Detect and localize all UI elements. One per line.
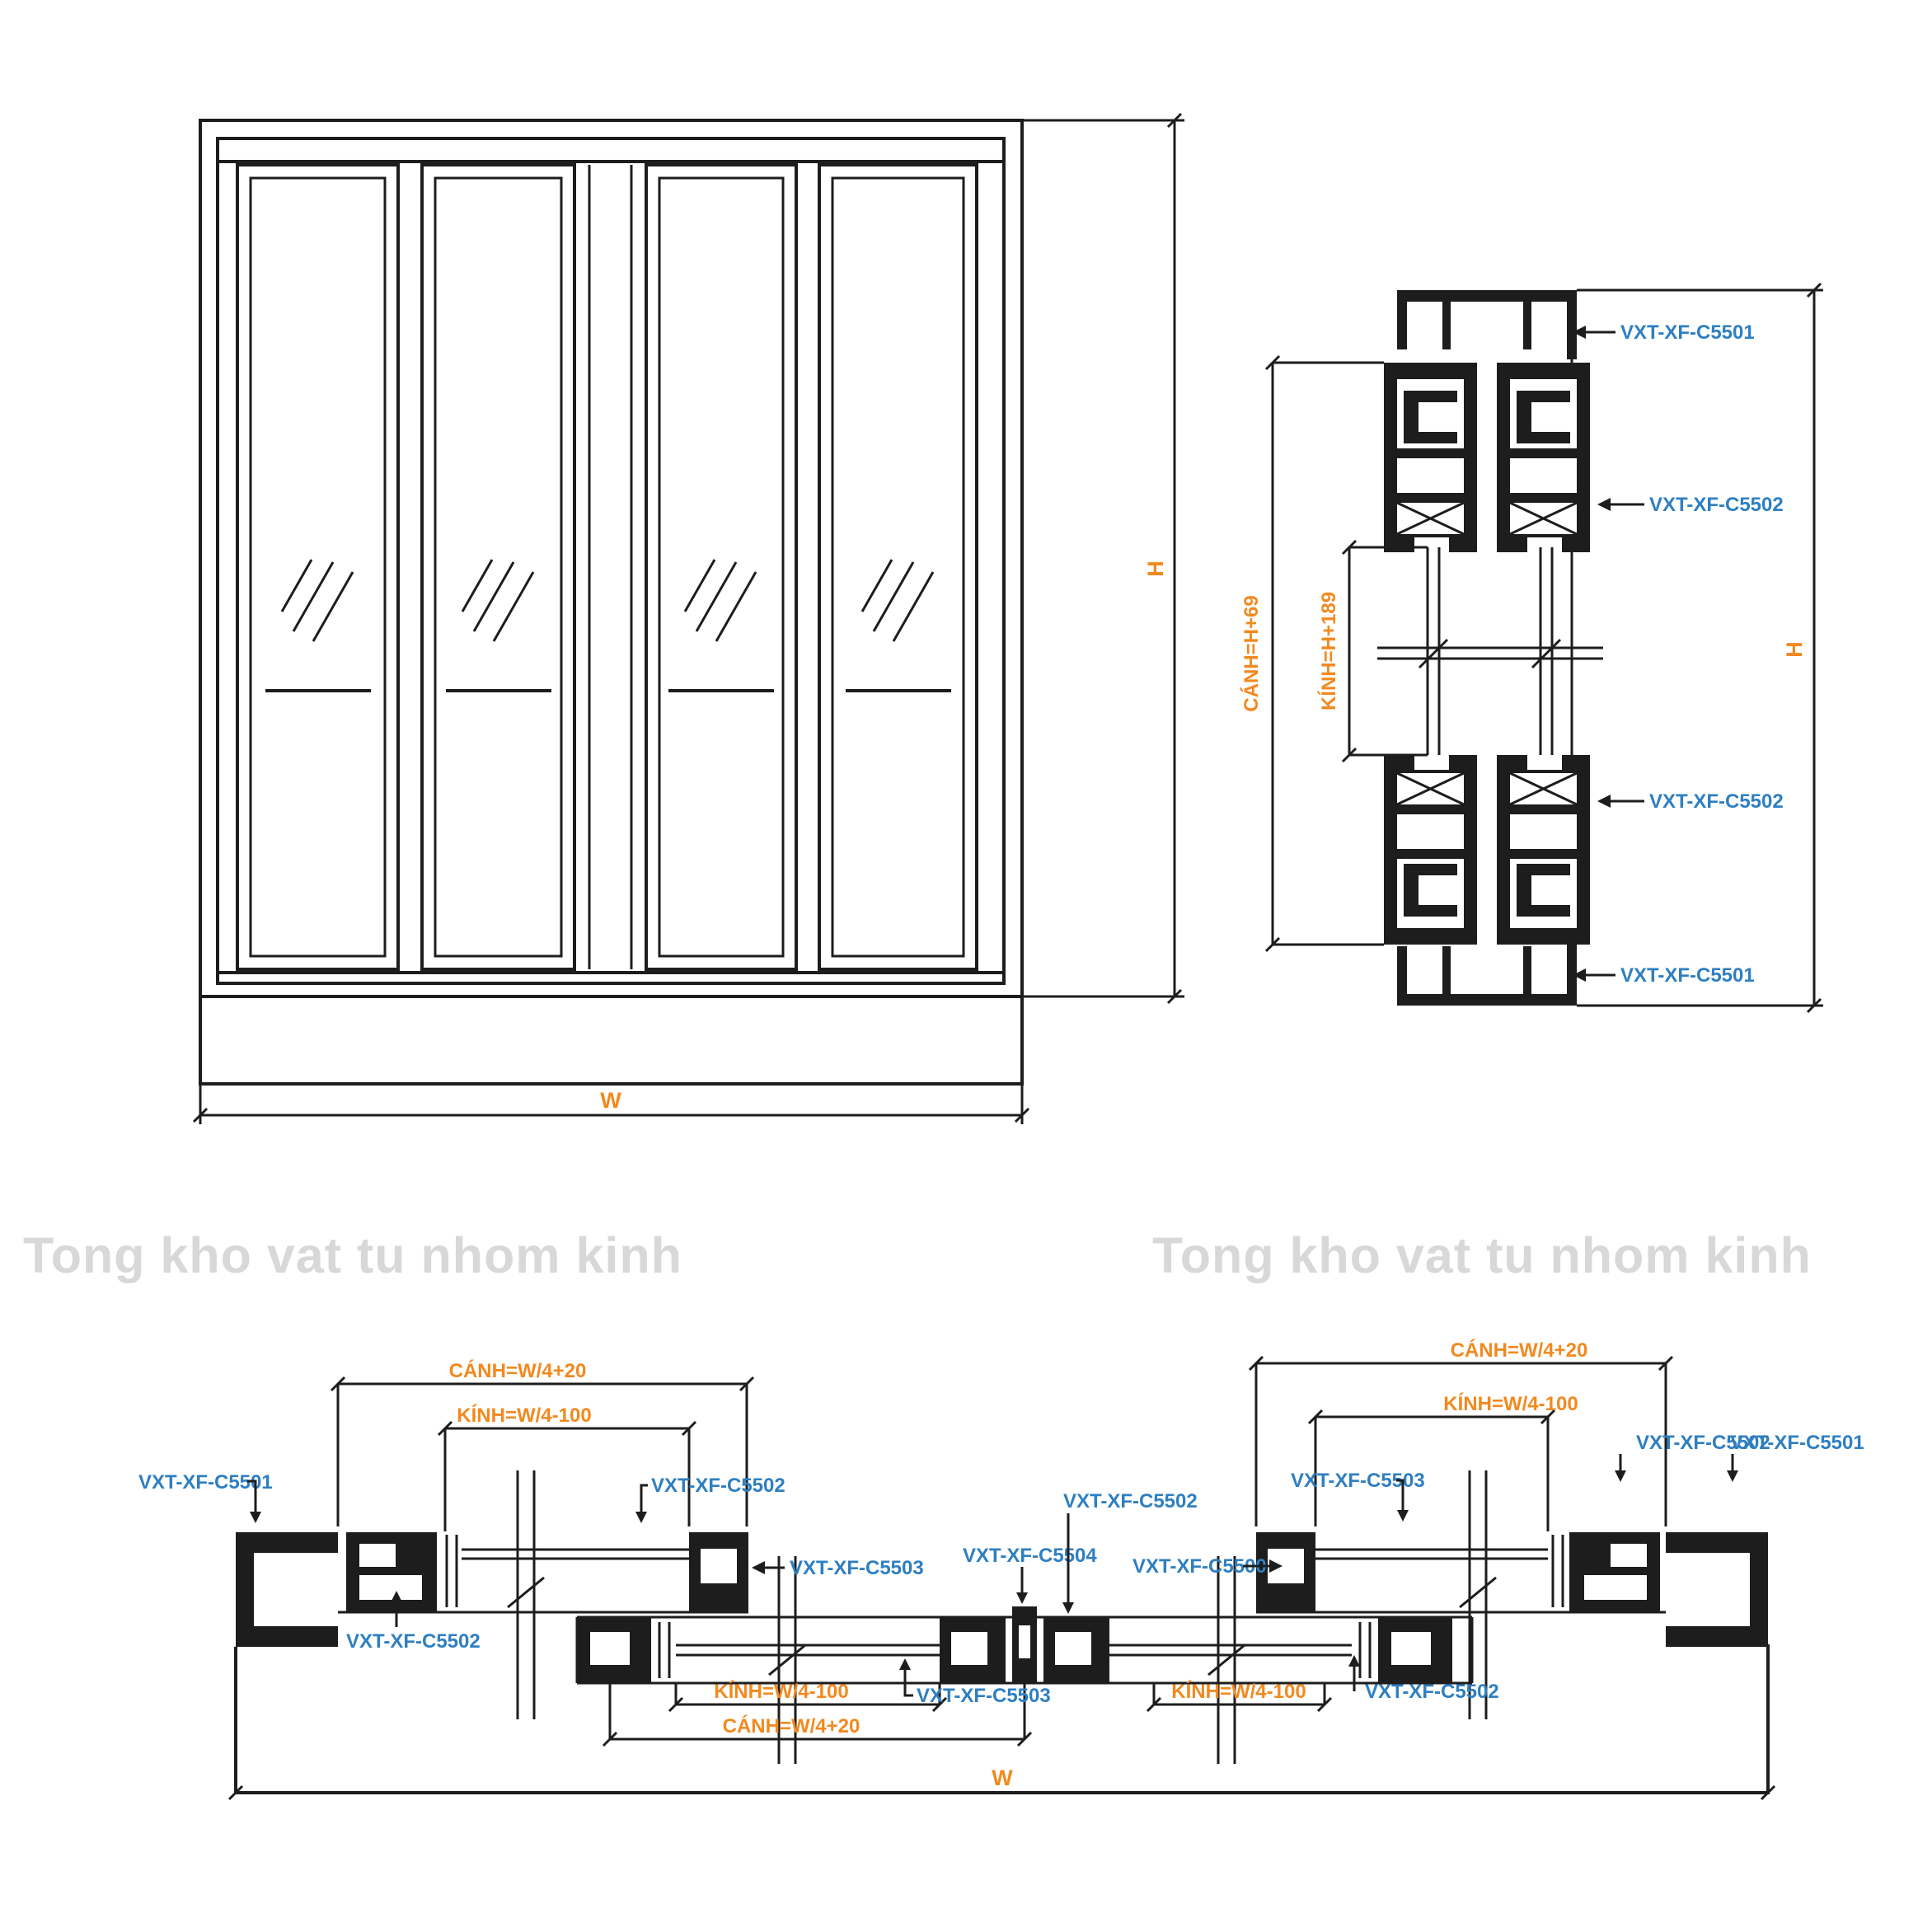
section-glass bbox=[1377, 547, 1603, 755]
elevation-h-dimension: H bbox=[1022, 114, 1184, 1003]
hs-dim-sash-right: CÁNH=W/4+20 bbox=[1451, 1339, 1588, 1362]
elevation-view: H W bbox=[194, 114, 1184, 1124]
vs-label-bottom-sash: VXT-XF-C5502 bbox=[1649, 790, 1784, 813]
vs-glass-dim-label: KÍNH=H+189 bbox=[1317, 592, 1340, 710]
vertical-section-view: CÁNH=H+69 KÍNH=H+189 H bbox=[1240, 284, 1823, 1012]
drawing-page: H W bbox=[0, 0, 1932, 1932]
glass-symbols bbox=[265, 560, 951, 691]
vs-h-dim-label: H bbox=[1782, 641, 1807, 658]
hs-label-bottom-left-sash: VXT-XF-C5502 bbox=[346, 1630, 481, 1653]
vs-label-top-sash: VXT-XF-C5502 bbox=[1649, 494, 1784, 516]
vs-h-dimension: H bbox=[1577, 284, 1823, 1012]
hs-label-bottom-right-sash: VXT-XF-C5502 bbox=[1365, 1681, 1499, 1703]
hs-dim-glass-left: KÍNH=W/4-100 bbox=[457, 1404, 591, 1427]
hs-label-left-glazing: VXT-XF-C5502 bbox=[651, 1475, 785, 1497]
horizontal-section-view: CÁNH=W/4+20 KÍNH=W/4-100 CÁNH=W/4+20 KÍN… bbox=[138, 1339, 1864, 1799]
vs-label-top-frame: VXT-XF-C5501 bbox=[1620, 321, 1755, 344]
watermark-left: Tong kho vat tu nhom kinh bbox=[23, 1227, 682, 1283]
hs-label-bottom-interlock: VXT-XF-C5503 bbox=[917, 1685, 1051, 1707]
hs-label-left-interlock: VXT-XF-C5503 bbox=[790, 1557, 924, 1579]
cad-drawing: H W bbox=[0, 0, 1932, 1932]
watermark-right: Tong kho vat tu nhom kinh bbox=[1152, 1227, 1812, 1283]
hs-dimensions: CÁNH=W/4+20 KÍNH=W/4-100 CÁNH=W/4+20 KÍN… bbox=[229, 1339, 1775, 1799]
sill-frame-profile bbox=[1397, 936, 1577, 1006]
hs-dim-glass-right: KÍNH=W/4-100 bbox=[1443, 1392, 1578, 1415]
hs-label-center-hook: VXT-XF-C5504 bbox=[963, 1545, 1097, 1567]
vs-part-labels: VXT-XF-C5501 VXT-XF-C5502 VXT-XF-C5502 V… bbox=[1573, 321, 1784, 987]
hs-dim-glass-center-right: KÍNH=W/4-100 bbox=[1171, 1680, 1306, 1703]
head-frame-profile bbox=[1397, 290, 1577, 359]
upper-sash-profiles bbox=[1384, 363, 1590, 552]
elevation-w-label: W bbox=[600, 1088, 621, 1113]
vs-glass-dimension: KÍNH=H+189 bbox=[1317, 541, 1428, 762]
hs-label-right-interlock: VXT-XF-C5503 bbox=[1291, 1470, 1425, 1492]
hs-label-center-sash: VXT-XF-C5502 bbox=[1063, 1490, 1198, 1512]
vs-sash-dim-label: CÁNH=H+69 bbox=[1240, 595, 1263, 711]
elevation-h-label: H bbox=[1143, 560, 1168, 577]
hs-dim-w-label: W bbox=[992, 1766, 1013, 1790]
hs-dim-glass-center-left: KÍNH=W/4-100 bbox=[714, 1680, 848, 1703]
vs-sash-dimension: CÁNH=H+69 bbox=[1240, 356, 1384, 951]
hs-dim-sash-center-left: CÁNH=W/4+20 bbox=[723, 1714, 860, 1737]
lower-sash-profiles bbox=[1384, 755, 1590, 945]
hs-dim-sash-left: CÁNH=W/4+20 bbox=[449, 1359, 587, 1382]
elevation-w-dimension: W bbox=[194, 1084, 1029, 1124]
hs-label-right-frame: VXT-XF-C5501 bbox=[1730, 1432, 1864, 1454]
vs-label-bottom-frame: VXT-XF-C5501 bbox=[1620, 964, 1755, 987]
